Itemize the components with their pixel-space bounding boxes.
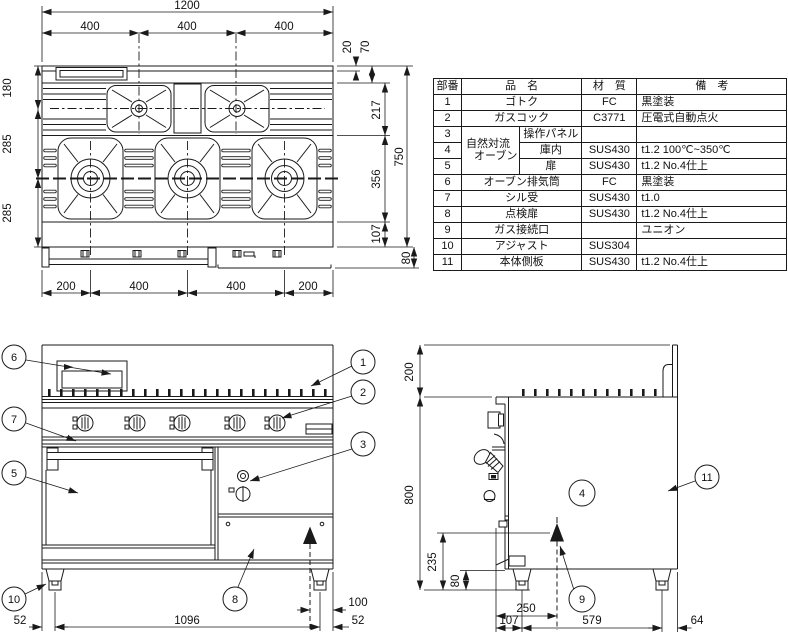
dim-side-gas-depth: 250: [516, 603, 535, 615]
part-material: [582, 127, 637, 143]
part-name: 扉: [520, 159, 582, 175]
part-note: t1.2 No.4仕上: [637, 159, 787, 175]
callout-11-label: 11: [701, 472, 712, 484]
dim-plan-col1: 400: [80, 21, 99, 33]
part-no: 6: [434, 175, 462, 191]
part-no: 7: [434, 191, 462, 207]
part-no: 5: [434, 159, 462, 175]
dim-plan-back-lip: 20: [342, 41, 354, 54]
part-material: SUS430: [582, 255, 637, 271]
part-no: 9: [434, 223, 462, 239]
callout-3: 3: [351, 432, 375, 456]
part-material: SUS430: [582, 191, 637, 207]
dim-side-leg-span: 579: [582, 615, 601, 627]
part-note: ユニオン: [637, 223, 787, 239]
part-material: C3771: [582, 111, 637, 127]
side-rear-leg: [653, 569, 671, 590]
dim-plan-left1: 180: [2, 78, 14, 97]
part-no: 8: [434, 207, 462, 223]
dim-plan-col3: 400: [274, 21, 293, 33]
front-inspection-door: [226, 522, 324, 526]
callout-8: 8: [223, 587, 247, 611]
dim-front-gas-offset: 100: [348, 597, 367, 609]
front-right-leg: [311, 569, 329, 590]
part-no: 11: [434, 255, 462, 271]
callout-1: 1: [351, 350, 375, 374]
dim-plan-bottom4: 200: [298, 281, 317, 293]
callout-4: 4: [569, 480, 595, 506]
part-note: 圧電式自動点火: [637, 111, 787, 127]
part-material: SUS430: [582, 143, 637, 159]
dim-plan-bottom1: 200: [56, 281, 75, 293]
part-name: アジャスト: [462, 239, 582, 255]
dim-plan-left2: 285: [2, 134, 14, 153]
side-gas-inlet-arrow: [550, 523, 564, 542]
callout-6: 6: [2, 345, 26, 369]
table-row: 1 ゴトク FC 黒塗装: [434, 95, 787, 111]
col-header-no: 部番: [434, 79, 462, 95]
parts-header-row: 部番 品 名 材 質 備 考: [434, 79, 787, 95]
part-name: シル受: [462, 191, 582, 207]
table-row: 8 点検扉 SUS430 t1.2 No.4仕上: [434, 207, 787, 223]
part-no: 10: [434, 239, 462, 255]
front-control-knobs: [73, 415, 285, 431]
dim-plan-back-band: 70: [360, 41, 372, 54]
part-note: t1.2 No.4仕上: [637, 255, 787, 271]
part-material: FC: [582, 175, 637, 191]
table-row: 3 自然対流 オーブン 操作パネル: [434, 127, 787, 143]
callout-7-label: 7: [11, 414, 17, 426]
callout-1-label: 1: [360, 357, 366, 369]
plan-exhaust-duct: [56, 68, 127, 81]
oven-group-line2: オーブン: [464, 151, 517, 163]
dim-plan-overall-depth: 750: [394, 147, 406, 166]
dim-plan-right2: 356: [371, 169, 383, 188]
dim-plan-left3: 285: [2, 203, 14, 222]
plan-igniter: [244, 252, 254, 256]
callout-11: 11: [695, 465, 719, 489]
plan-front-rail: [42, 248, 331, 268]
part-no: 1: [434, 95, 462, 111]
dim-plan-front-rail: 80: [401, 252, 413, 265]
table-row: 9 ガス接続口 ユニオン: [434, 223, 787, 239]
front-nameplate: [306, 424, 332, 434]
dim-side-flue-height: 200: [404, 362, 416, 381]
dim-side-base-height: 80: [450, 575, 462, 588]
dim-front-leg-left: 52: [14, 615, 27, 627]
side-front-profile: [471, 412, 508, 527]
dim-side-gas-height: 235: [427, 552, 439, 571]
part-material: SUS430: [582, 207, 637, 223]
col-header-name: 品 名: [462, 79, 582, 95]
part-note: [637, 239, 787, 255]
part-note: 黒塗装: [637, 95, 787, 111]
callout-9-label: 9: [579, 594, 585, 606]
dim-plan-overall-width: 1200: [174, 0, 200, 12]
dim-plan-right3: 107: [371, 224, 383, 243]
callout-10-label: 10: [8, 594, 20, 606]
dim-front-leg-right: 52: [352, 615, 365, 627]
callout-2: 2: [351, 380, 375, 404]
front-oven-door: [42, 448, 215, 548]
part-no: 2: [434, 111, 462, 127]
part-name: ゴトク: [462, 95, 582, 111]
table-row: 6 オーブン排気筒 FC 黒塗装: [434, 175, 787, 191]
callout-10: 10: [2, 587, 26, 611]
part-note: t1.0: [637, 191, 787, 207]
parts-table: 部番 品 名 材 質 備 考 1 ゴトク FC 黒塗装 2 ガスコック C377…: [433, 78, 787, 271]
part-name: 庫内: [520, 143, 582, 159]
part-note: t1.2 No.4仕上: [637, 207, 787, 223]
table-row: 10 アジャスト SUS304: [434, 239, 787, 255]
part-material: SUS304: [582, 239, 637, 255]
dim-plan-right1: 217: [371, 100, 383, 119]
part-note: t1.2 100℃~350℃: [637, 143, 787, 159]
front-view: [42, 345, 333, 631]
table-row: 11 本体側板 SUS430 t1.2 No.4仕上: [434, 255, 787, 271]
dim-front-leg-span: 1096: [174, 615, 200, 627]
callout-8-label: 8: [232, 594, 238, 606]
front-exhaust-duct: [57, 361, 127, 391]
part-name: ガス接続口: [462, 223, 582, 239]
callout-3-label: 3: [360, 439, 366, 451]
part-no: 3: [434, 127, 462, 143]
side-gas-connection-box: [496, 556, 525, 566]
callout-7: 7: [2, 407, 26, 431]
col-header-material: 材 質: [582, 79, 637, 95]
part-name: オーブン排気筒: [462, 175, 582, 191]
oven-group-line1: 自然対流: [464, 139, 517, 151]
callout-5-label: 5: [11, 468, 17, 480]
col-header-note: 備 考: [637, 79, 787, 95]
part-name: 点検扉: [462, 207, 582, 223]
drawing-sheet: 1200 400 400 400 20 70 180 285 285 217 3…: [0, 0, 788, 641]
front-sill-lines: [42, 437, 333, 447]
plan-view: [36, 34, 339, 268]
part-material: SUS430: [582, 159, 637, 175]
part-name: 本体側板: [462, 255, 582, 271]
dim-side-rear-offset: 64: [691, 615, 704, 627]
dim-side-front-offset: 107: [499, 615, 518, 627]
dim-plan-col2: 400: [177, 21, 196, 33]
oven-group-cell: 自然対流 オーブン: [462, 127, 520, 175]
callout-4-label: 4: [579, 488, 585, 500]
part-name: ガスコック: [462, 111, 582, 127]
part-note: [637, 127, 787, 143]
table-row: 2 ガスコック C3771 圧電式自動点火: [434, 111, 787, 127]
dim-plan-bottom3: 400: [226, 281, 245, 293]
callout-5: 5: [2, 461, 26, 485]
callout-6-label: 6: [11, 352, 17, 364]
front-pilot-and-thermostat: [229, 471, 250, 503]
callout-2-label: 2: [360, 387, 366, 399]
part-name: 操作パネル: [520, 127, 582, 143]
dim-side-body-height: 800: [404, 485, 416, 504]
part-material: [582, 223, 637, 239]
front-left-leg: [46, 569, 64, 590]
side-front-leg: [513, 569, 531, 590]
front-gas-inlet-arrow: [303, 527, 317, 545]
dim-plan-bottom2: 400: [129, 281, 148, 293]
part-material: FC: [582, 95, 637, 111]
callout-9: 9: [569, 586, 595, 612]
part-no: 4: [434, 143, 462, 159]
part-note: 黒塗装: [637, 175, 787, 191]
table-row: 7 シル受 SUS430 t1.0: [434, 191, 787, 207]
